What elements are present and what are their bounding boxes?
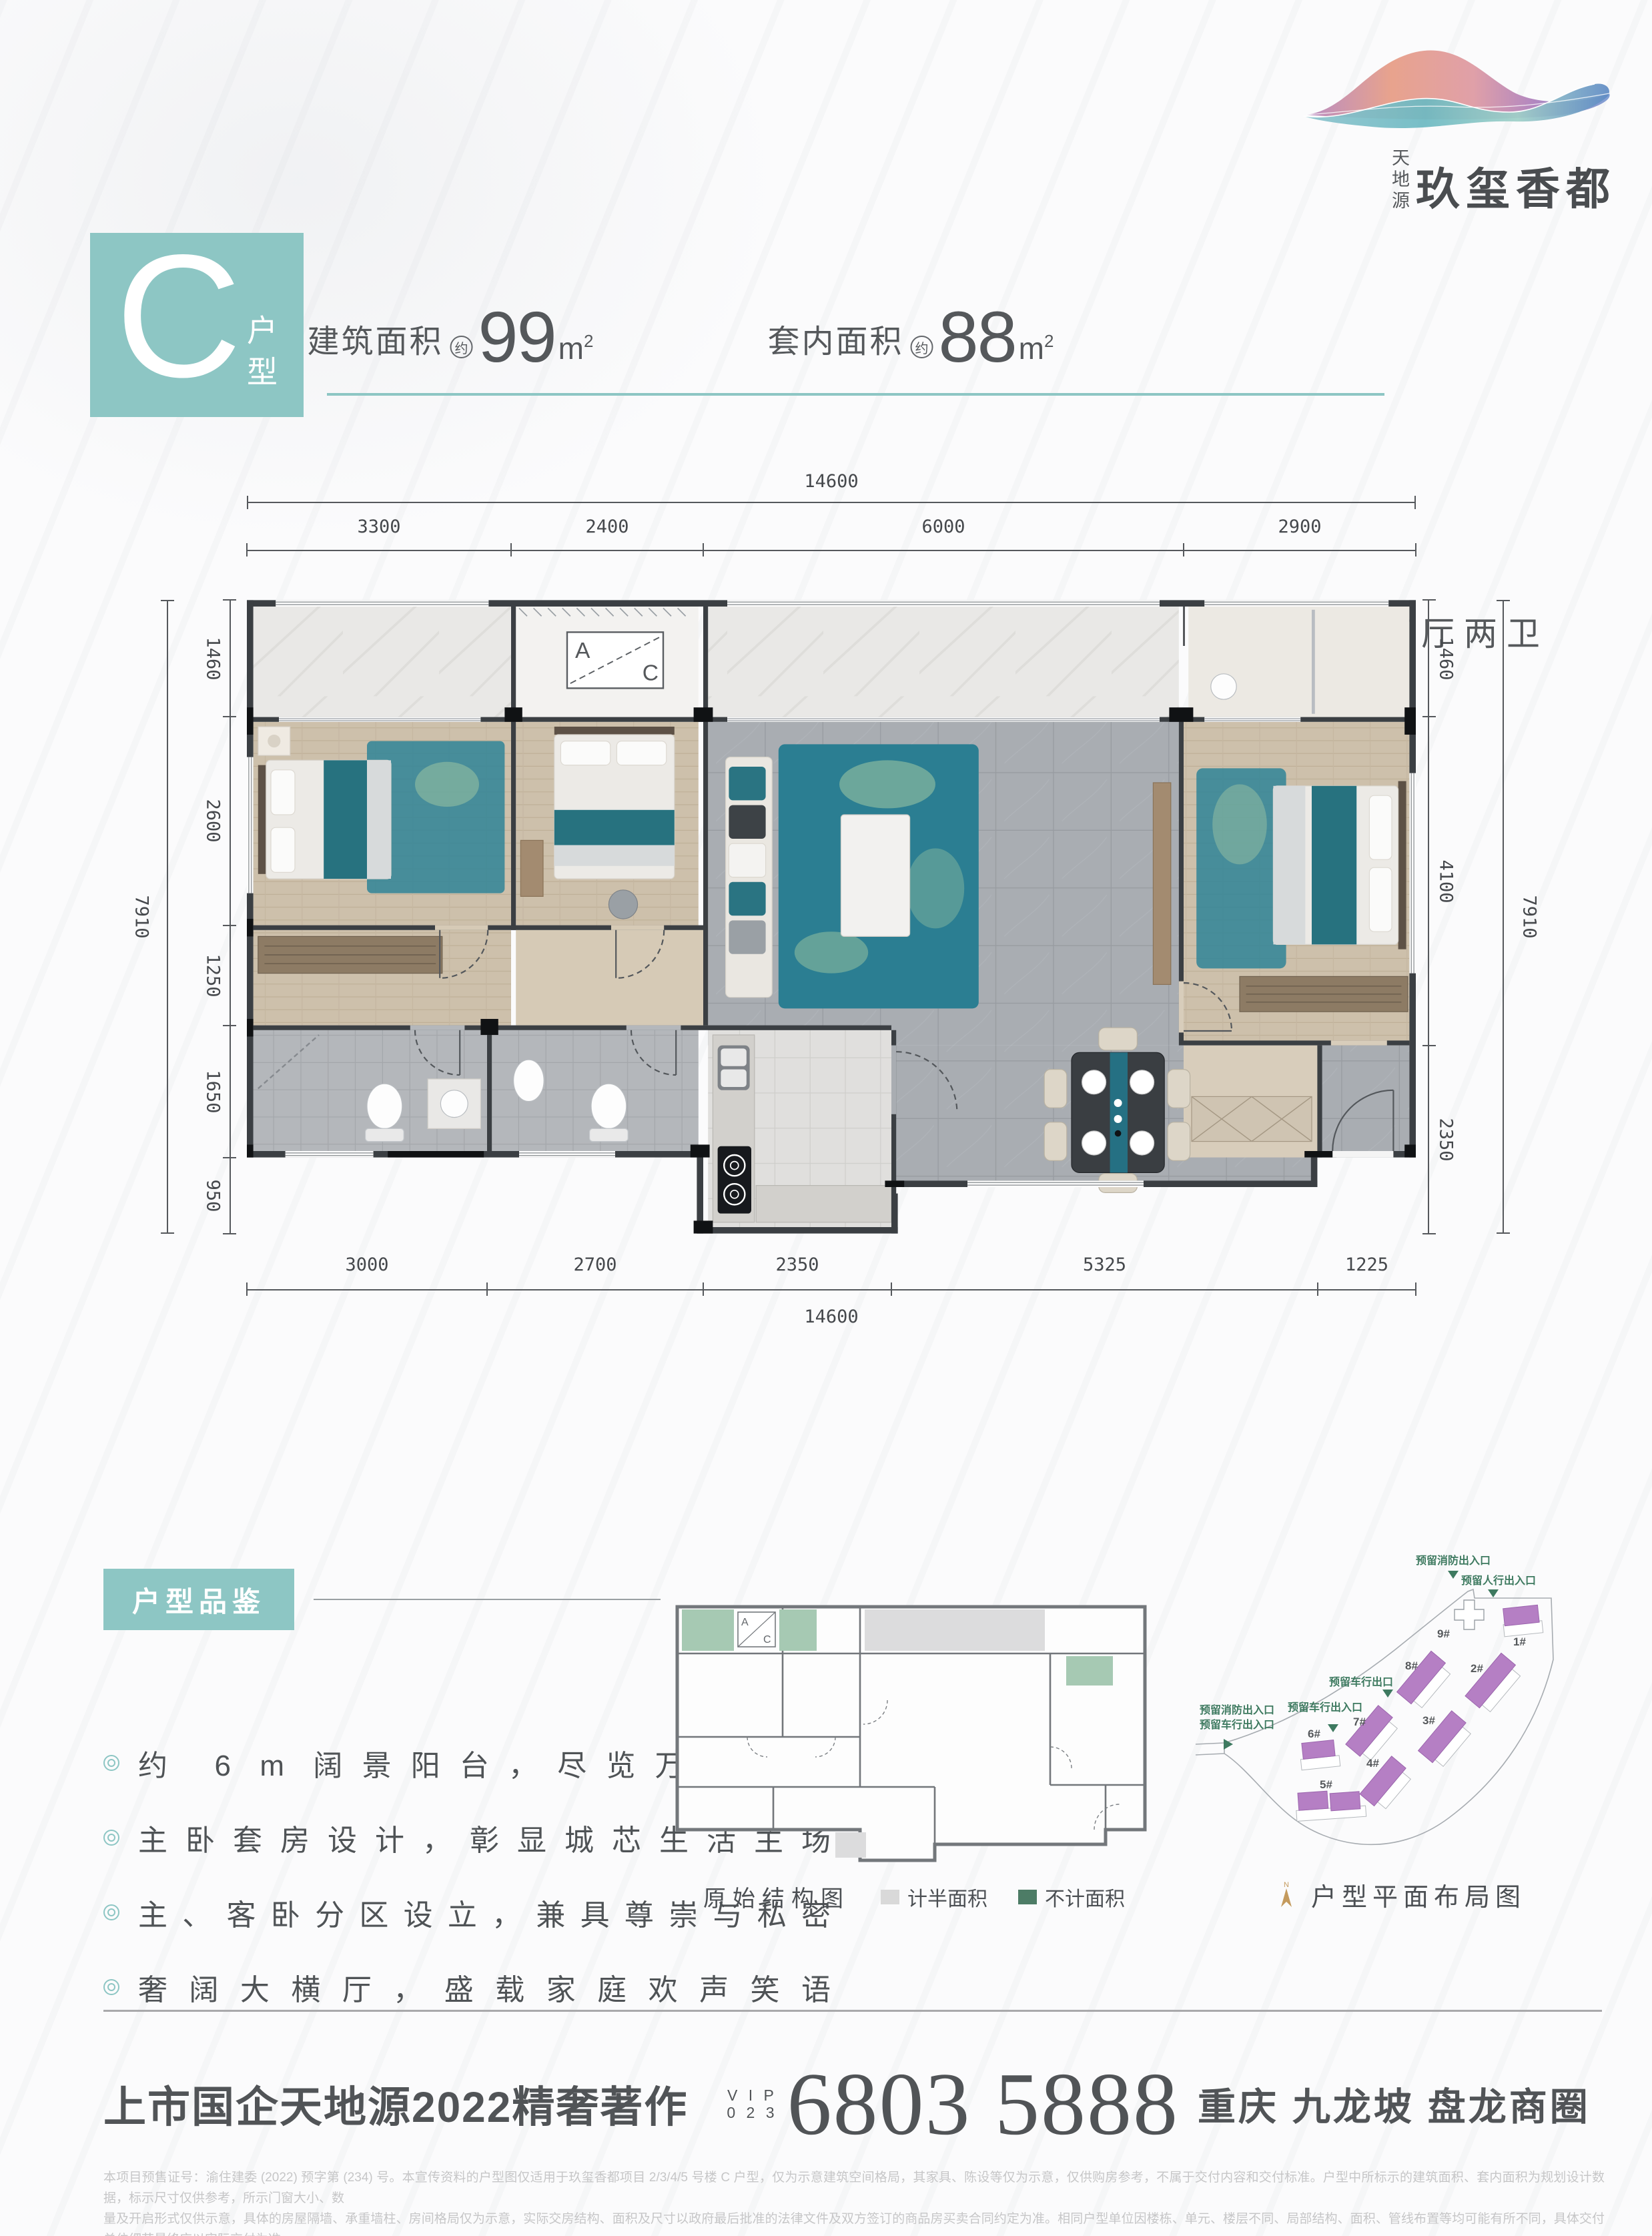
arrow-down-icon	[1448, 1571, 1459, 1579]
svg-text:N: N	[1284, 1881, 1289, 1889]
svg-text:7#: 7#	[1353, 1716, 1366, 1728]
arrow-down-icon	[1328, 1724, 1338, 1732]
plate	[1082, 1131, 1106, 1155]
dim-line	[247, 502, 1416, 503]
legend-half-area: 计半面积	[881, 1882, 987, 1912]
dim-cell: 2400	[511, 516, 703, 550]
table-deco	[1115, 1130, 1122, 1137]
dining-chair	[1168, 1122, 1190, 1161]
spec-value: 88	[939, 301, 1016, 373]
svg-text:预留车行出入口: 预留车行出入口	[1288, 1701, 1362, 1714]
dim-cell: 5325	[891, 1254, 1318, 1289]
sofa-pillow	[729, 767, 765, 800]
bullet-icon	[103, 1979, 119, 1995]
struct-caption-row: 原始结构图 计半面积 不计面积	[647, 1880, 1181, 1913]
dining-chair	[1168, 1070, 1190, 1108]
dim-right-segments: 1460 4100 2350	[1428, 600, 1463, 1234]
bed2-pillow	[560, 741, 610, 765]
floor-plan: A C	[247, 600, 1416, 1234]
site-plan: 1# 2# 3# 4# 5# 6# 7# 8# 9# 预留消防出入口 预留人行出…	[1188, 1529, 1615, 1863]
dim-cell: 3300	[247, 516, 511, 550]
tv-cabinet	[1153, 783, 1170, 984]
rug-pattern	[1212, 784, 1267, 864]
plate	[1130, 1131, 1154, 1155]
legend-swatch	[881, 1890, 899, 1904]
sofa-pillow	[729, 805, 765, 839]
legend-swatch	[1018, 1890, 1037, 1904]
sofa-pillow	[729, 920, 765, 954]
dim-left-segments: 1460 2600 1250 1650 950	[196, 600, 231, 1234]
rug-pattern	[415, 762, 479, 807]
logo-company: 天地源	[1386, 148, 1412, 212]
bed2-blanket	[554, 845, 675, 866]
disclaimer-line: 本项目预售证号：渝住建委 (2022) 预字第 (234) 号。本宣传资料的户型…	[103, 2167, 1605, 2209]
tagline-row: 上市国企天地源2022精奢著作 V I P 0 2 3 6803 5888 重庆…	[103, 2054, 1602, 2154]
tagline-slogan: 上市国企天地源2022精奢著作	[103, 2073, 688, 2135]
approx-badge: 约	[450, 336, 473, 358]
brand-logo: 天地源 玖玺香都	[1288, 35, 1628, 235]
dim-top-total: 14600	[247, 471, 1416, 492]
sink-bowl	[721, 1070, 746, 1087]
table-runner	[1110, 1052, 1128, 1172]
toilet	[591, 1084, 627, 1128]
bedroom2-cabinet	[520, 840, 543, 896]
svg-text:1#: 1#	[1513, 1635, 1526, 1648]
svg-text:3#: 3#	[1422, 1714, 1435, 1727]
building-1	[1502, 1605, 1543, 1637]
site-road	[1196, 1743, 1224, 1755]
bed2-throw	[554, 810, 675, 845]
bullet-icon	[103, 1830, 119, 1846]
spec-built-area: 建筑面积 约 99 m2	[308, 288, 594, 388]
ac-label-a: A	[575, 639, 590, 663]
master-pillow	[1369, 867, 1392, 931]
legend-excluded-area: 不计面积	[1018, 1882, 1125, 1912]
dim-cell: 2350	[1429, 1046, 1463, 1234]
cooktop	[718, 1146, 751, 1214]
basin	[514, 1060, 544, 1101]
highlights-title-box: 户型品鉴	[103, 1569, 294, 1630]
approx-badge: 约	[911, 336, 933, 358]
dim-left-total: 7910	[131, 895, 152, 938]
legal-disclaimer: 本项目预售证号：渝住建委 (2022) 预字第 (234) 号。本宣传资料的户型…	[103, 2167, 1605, 2236]
dim-line	[167, 600, 168, 1234]
bed1-pillow	[271, 770, 295, 815]
bed2-pillow	[616, 741, 666, 765]
kitchen-counter	[756, 1186, 891, 1222]
dim-cell: 1250	[196, 925, 230, 1026]
dim-cell: 2700	[487, 1254, 703, 1289]
toilet	[367, 1084, 402, 1128]
svg-text:8#: 8#	[1405, 1659, 1418, 1672]
mbath-shower-glass	[1312, 610, 1315, 714]
site-caption: 户型平面布局图	[1311, 1876, 1526, 1913]
disclaimer-line: 量及开启形式仅供示意，具体的房屋隔墙、承重墙柱、房间格局仅为示意，实际交房结构、…	[103, 2209, 1605, 2236]
table-deco	[1114, 1099, 1122, 1107]
rug-pattern	[839, 760, 935, 808]
compass-icon: N	[1276, 1880, 1296, 1910]
master-pillow	[1369, 795, 1392, 859]
dim-cell: 1650	[196, 1026, 230, 1158]
plate	[1082, 1070, 1106, 1094]
building-9	[1455, 1600, 1484, 1629]
svg-text:预留消防出入口: 预留消防出入口	[1200, 1704, 1274, 1716]
list-item: 奢阔大横厅，盛载家庭欢声笑语	[103, 1950, 844, 2024]
bed1-pillow	[271, 827, 295, 872]
bullet-icon	[103, 1755, 119, 1771]
bullet-icon	[103, 1904, 119, 1920]
dim-cell: 3000	[247, 1254, 487, 1289]
bed1-blanket	[367, 760, 391, 879]
real-estate-poster: 天地源 玖玺香都 C 户型 建筑面积 约 99 m2 套内面积 约 88 m2 …	[0, 0, 1652, 2236]
sink-bowl	[721, 1048, 746, 1066]
dim-cell: 2600	[196, 717, 230, 925]
arrow-down-icon	[1488, 1589, 1499, 1597]
hall-cabinet	[1192, 1096, 1312, 1141]
master-bath-floor	[1188, 607, 1409, 717]
logo-brand-name: 玖玺香都	[1416, 153, 1616, 218]
coffee-table	[841, 815, 909, 936]
building-7	[1346, 1706, 1401, 1764]
chair	[608, 890, 637, 919]
dim-bottom-segments: 3000 2700 2350 5325 1225	[247, 1254, 1416, 1290]
spec-label: 建筑面积	[308, 315, 444, 362]
vip-code: V I P 0 2 3	[727, 2087, 777, 2122]
spec-unit: m2	[558, 330, 594, 366]
bed1-headboard	[258, 765, 266, 874]
dim-cell: 1225	[1318, 1254, 1416, 1289]
table-deco	[1114, 1115, 1122, 1123]
bottom-divider	[103, 2010, 1602, 2012]
mbath-basin	[1211, 674, 1236, 699]
struct-caption: 原始结构图	[703, 1880, 850, 1913]
dim-right-total: 7910	[1519, 895, 1540, 938]
svg-text:预留人行出入口: 预留人行出入口	[1461, 1574, 1536, 1587]
svg-text:6#: 6#	[1308, 1728, 1320, 1740]
bed2-headboard	[554, 727, 675, 735]
sofa-pillow	[729, 882, 765, 915]
dim-bottom-total: 14600	[247, 1307, 1416, 1327]
dim-cell: 1460	[196, 600, 230, 717]
master-blanket	[1273, 786, 1305, 945]
living-balcony-floor	[708, 607, 1179, 717]
building-6	[1299, 1740, 1340, 1770]
basin	[440, 1090, 468, 1118]
svg-text:C: C	[763, 1634, 771, 1645]
lamp	[268, 735, 280, 747]
arrow-down-icon	[1382, 1690, 1393, 1698]
highlights-rule	[314, 1599, 661, 1600]
ac-label-c: C	[643, 661, 659, 685]
struct-ac-box: A C	[738, 1612, 775, 1647]
building-5	[1295, 1788, 1366, 1821]
rug-pattern	[907, 848, 964, 928]
plate	[1130, 1070, 1154, 1094]
svg-text:A: A	[741, 1617, 749, 1628]
balcony-left-floor	[254, 607, 511, 717]
spec-value: 99	[478, 301, 556, 373]
svg-text:4#: 4#	[1366, 1757, 1379, 1770]
toilet-tank	[590, 1128, 629, 1141]
dim-cell: 2900	[1184, 516, 1416, 550]
phone-number: 6803 5888	[787, 2053, 1180, 2155]
svg-text:预留车行出入口: 预留车行出入口	[1200, 1718, 1274, 1731]
dim-cell: 4100	[1429, 717, 1463, 1045]
logo-wave-icon	[1294, 40, 1621, 140]
master-headboard	[1398, 781, 1406, 950]
svg-text:预留消防出入口: 预留消防出入口	[1416, 1554, 1491, 1567]
svg-text:9#: 9#	[1437, 1627, 1450, 1640]
svg-text:预留车行出口: 预留车行出口	[1329, 1675, 1393, 1688]
svg-text:2#: 2#	[1471, 1662, 1483, 1675]
dining-chair	[1044, 1122, 1067, 1161]
dining-chair	[1099, 1028, 1138, 1050]
spec-unit: m2	[1019, 330, 1054, 366]
dim-cell: 2350	[703, 1254, 891, 1289]
spec-label: 套内面积	[768, 315, 904, 362]
dim-top-segments: 3300 2400 6000 2900	[247, 516, 1416, 551]
dim-cell: 950	[196, 1158, 230, 1234]
original-structure-diagram: A C	[667, 1580, 1174, 1874]
dim-cell: 1460	[1429, 600, 1463, 717]
bed1-throw	[324, 760, 367, 879]
dim-cell: 6000	[703, 516, 1184, 550]
rug-pattern	[795, 931, 868, 973]
master-throw	[1312, 786, 1356, 945]
dining-chair	[1044, 1070, 1067, 1108]
spec-inner-area: 套内面积 约 88 m2	[768, 288, 1054, 388]
sofa-pillow	[729, 843, 765, 877]
spec-row: 建筑面积 约 99 m2 套内面积 约 88 m2 三室两厅两卫	[0, 288, 1652, 388]
location-text: 重庆 九龙坡 盘龙商圈	[1198, 2077, 1591, 2131]
header-underline	[327, 393, 1384, 396]
svg-text:5#: 5#	[1320, 1778, 1332, 1791]
dim-line	[1503, 600, 1504, 1234]
site-caption-row: N 户型平面布局图	[1188, 1876, 1615, 1913]
toilet-tank	[366, 1128, 404, 1141]
highlights-title: 户型品鉴	[132, 1579, 266, 1620]
corridor-floor	[516, 930, 708, 1026]
